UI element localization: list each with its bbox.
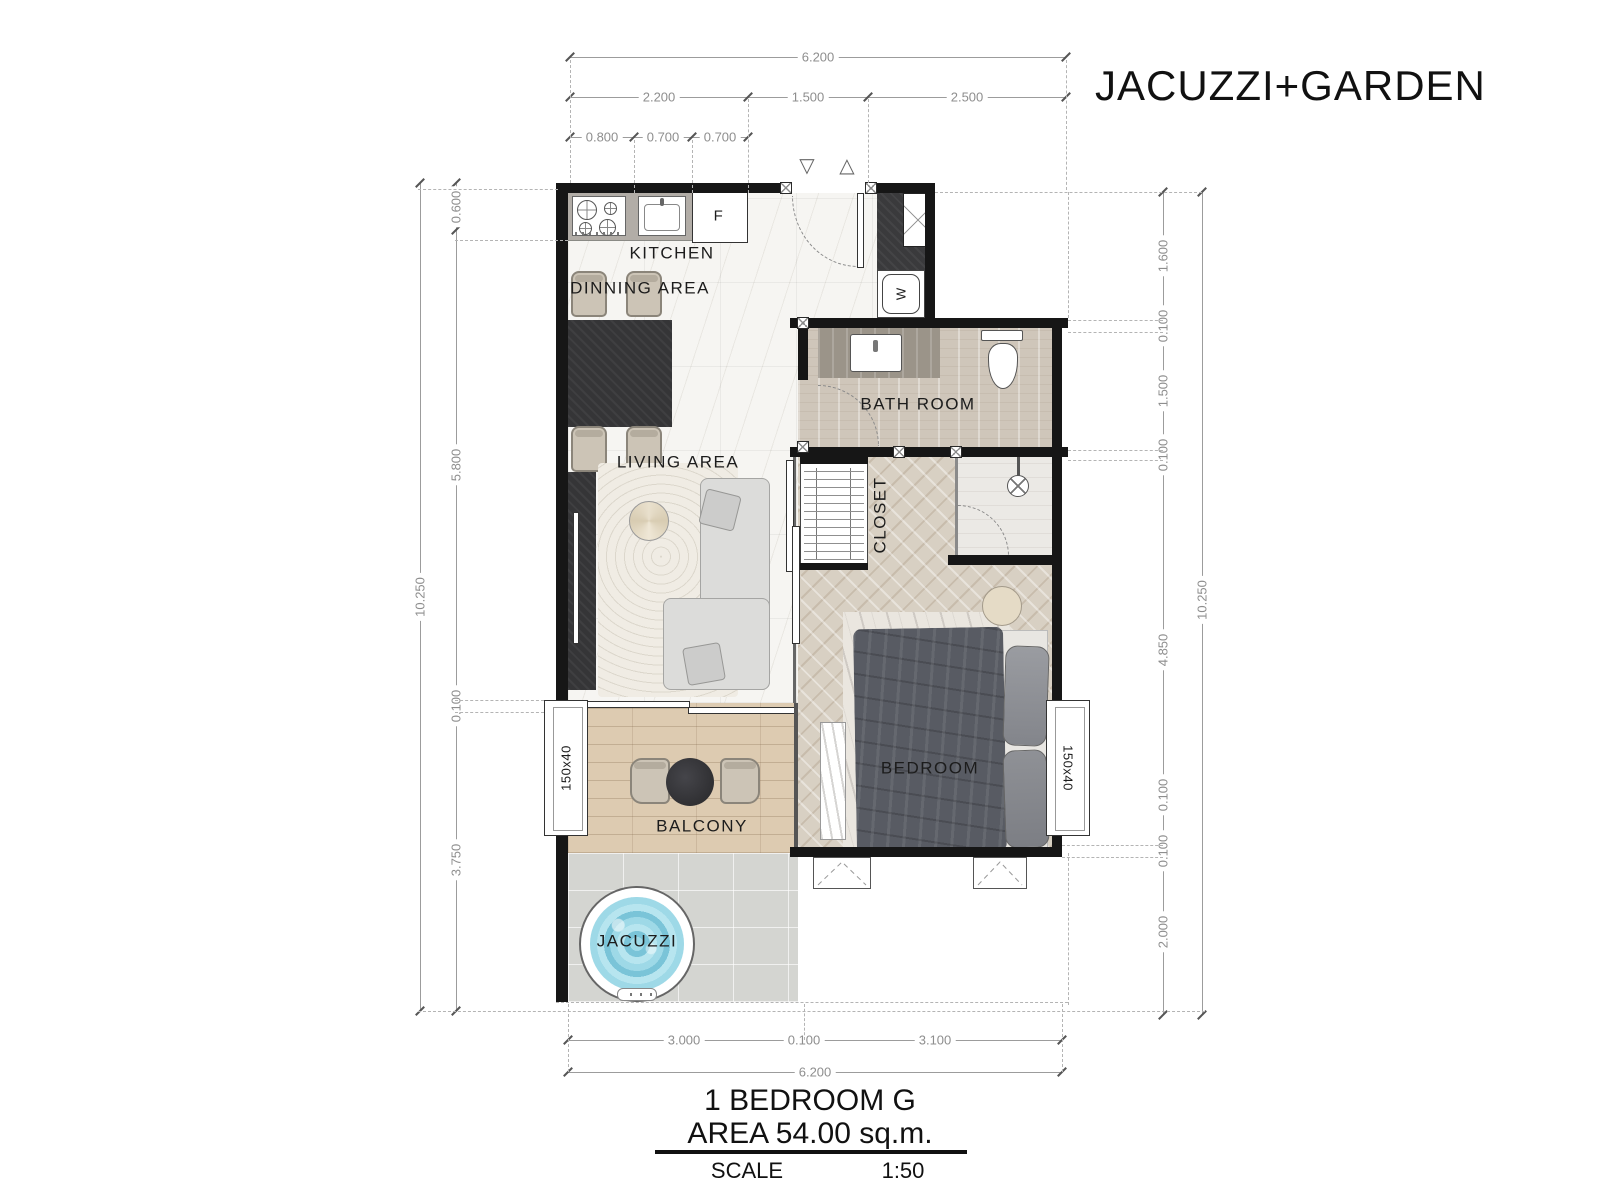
- jacuzzi-steps: [617, 988, 657, 1001]
- dining-table: [568, 320, 672, 427]
- entry-triangle-down-icon: ▽: [795, 155, 819, 177]
- fridge-label: F: [714, 209, 725, 224]
- wall-left-upper: [556, 193, 568, 702]
- ext-line: [418, 1011, 1205, 1012]
- coffee-table: [629, 501, 669, 541]
- closet-cap-bottom: [800, 563, 868, 570]
- scale-label: SCALE: [711, 1158, 783, 1184]
- wall-left-lower: [556, 834, 568, 1002]
- ext-line: [455, 240, 568, 241]
- sink-basin: [644, 204, 680, 231]
- dim-label: 2.000: [1156, 912, 1171, 953]
- closet-cap-top: [800, 457, 868, 464]
- ext-line: [1068, 460, 1163, 461]
- faucet-icon: [873, 340, 878, 352]
- wall-bathroom-bottom: [790, 447, 1068, 457]
- ext-line: [935, 192, 1202, 193]
- dim-label: 1.500: [788, 90, 829, 105]
- wall-post: [797, 317, 809, 329]
- entry-triangle-up-icon: △: [835, 155, 859, 177]
- dim-label: 1.500: [1156, 371, 1171, 412]
- dim-line: [456, 183, 457, 1011]
- wall-post: [797, 441, 809, 453]
- dim-label: 1.600: [1156, 236, 1171, 277]
- dim-label: 0.100: [1156, 435, 1171, 476]
- ext-line: [748, 99, 749, 193]
- unit-area: AREA 54.00 sq.m.: [687, 1117, 932, 1151]
- dim-label: 10.250: [413, 573, 428, 621]
- bed-duvet: [853, 627, 1007, 854]
- dim-label: 3.000: [664, 1033, 705, 1048]
- ext-line: [1062, 1004, 1063, 1072]
- shower-pipe: [1017, 457, 1020, 477]
- ext-line: [1066, 60, 1067, 190]
- wall-right-upper: [1052, 318, 1062, 703]
- wall-post: [893, 446, 905, 458]
- room-label-dining: DINNING AREA: [570, 280, 710, 297]
- ext-line: [570, 60, 571, 183]
- casement-window: [813, 857, 871, 889]
- dim-label: 3.750: [449, 840, 464, 881]
- room-label-bathroom: BATH ROOM: [860, 396, 975, 413]
- ext-line: [455, 712, 544, 713]
- ext-line: [1062, 857, 1163, 858]
- room-label-closet: CLOSET: [872, 476, 889, 553]
- ext-line: [418, 189, 558, 190]
- balcony-sliding-panel: [574, 701, 690, 708]
- stove-knobs: [575, 232, 623, 235]
- burner-icon: [577, 200, 597, 220]
- balcony-chair: [630, 758, 670, 804]
- ext-line: [1068, 320, 1163, 321]
- garden-boundary: [556, 1002, 1068, 1003]
- burner-icon: [604, 202, 617, 215]
- garden-boundary: [1068, 853, 1069, 1005]
- dim-label: 0.800: [582, 130, 623, 145]
- shower-head-icon: [1007, 475, 1029, 497]
- room-label-bedroom: BEDROOM: [881, 760, 979, 777]
- wall-post: [950, 446, 962, 458]
- balcony-table: [666, 758, 714, 806]
- dim-label: 6.200: [795, 1065, 836, 1080]
- closet-hangers: [804, 468, 864, 560]
- room-label-kitchen: KITCHEN: [629, 245, 714, 262]
- ext-line: [692, 140, 693, 193]
- balcony-chair: [720, 758, 760, 804]
- bed-pillow: [1002, 645, 1049, 746]
- bed-pillow: [1002, 749, 1049, 848]
- dim-label: 5.800: [449, 445, 464, 486]
- bedside-stool: [982, 586, 1022, 626]
- partition-balcony-bedroom: [794, 703, 798, 853]
- dim-label: 0.100: [1156, 306, 1171, 347]
- ext-line: [455, 700, 544, 701]
- door-jamb-post: [865, 182, 877, 194]
- page-title: JACUZZI+GARDEN: [1095, 62, 1486, 110]
- ext-line: [568, 1004, 569, 1072]
- dim-label: 3.100: [915, 1033, 956, 1048]
- sofa-pillow: [682, 642, 726, 686]
- casement-swing-icon: [974, 858, 1026, 888]
- dim-label: 0.700: [643, 130, 684, 145]
- wall-bathroom-top: [790, 318, 1068, 328]
- floor-plan-page: JACUZZI+GARDEN F KITCHEN DINNING AREA LI…: [0, 0, 1600, 1200]
- dim-label: 0.700: [700, 130, 741, 145]
- casement-window: [973, 857, 1027, 889]
- balcony-sliding-panel: [688, 707, 798, 714]
- unit-name: 1 BEDROOM G: [704, 1084, 916, 1118]
- wall-top-left: [556, 183, 792, 193]
- scale-value: 1:50: [882, 1158, 925, 1184]
- dim-label: 6.200: [798, 50, 839, 65]
- dim-label: 0.100: [449, 686, 464, 727]
- door-jamb-post: [780, 182, 792, 194]
- dim-label: 4.850: [1156, 630, 1171, 671]
- dim-label: 2.200: [639, 90, 680, 105]
- room-label-balcony: BALCONY: [656, 818, 748, 835]
- wall-bedroom-bottom: [790, 847, 1062, 857]
- room-label-living: LIVING AREA: [617, 454, 739, 471]
- ext-line: [1068, 450, 1163, 451]
- room-label-jacuzzi: JACUZZI: [597, 933, 677, 950]
- dim-label: 0.600: [449, 187, 464, 228]
- window-left-label: 150x40: [560, 745, 573, 791]
- dim-label: 2.500: [947, 90, 988, 105]
- dim-label: 0.100: [1156, 775, 1171, 816]
- title-block-rule: [655, 1150, 967, 1154]
- ext-line: [804, 1004, 805, 1040]
- faucet-icon: [660, 198, 664, 206]
- bedroom-bench: [820, 722, 846, 840]
- wall-shower-bottom: [948, 555, 1062, 565]
- entry-door-leaf: [857, 193, 864, 268]
- ext-line: [1062, 845, 1163, 846]
- dim-label: 10.250: [1195, 576, 1210, 624]
- casement-swing-icon: [814, 858, 870, 888]
- window-right-label: 150x40: [1061, 745, 1076, 791]
- ext-line: [1068, 332, 1163, 333]
- ext-line: [868, 99, 869, 183]
- wall-utility-right: [925, 183, 935, 318]
- ext-line: [1068, 192, 1069, 318]
- dim-label: 0.100: [1156, 831, 1171, 872]
- washer-label: W: [895, 288, 908, 300]
- sliding-door-panel: [792, 526, 800, 644]
- ext-line: [634, 140, 635, 193]
- toilet-tank: [981, 330, 1023, 341]
- tv-icon: [573, 512, 579, 644]
